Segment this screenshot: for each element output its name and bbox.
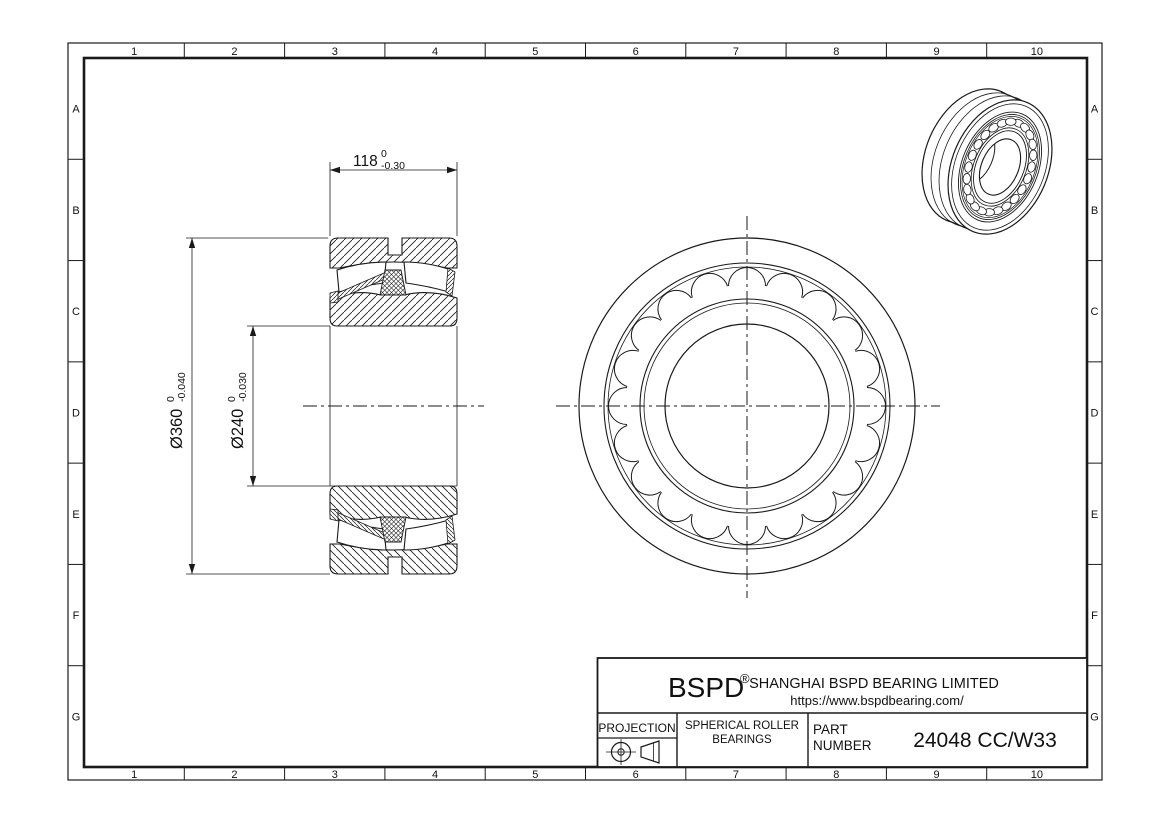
product-type-line2: BEARINGS bbox=[712, 734, 772, 746]
grid-column-label-top: 2 bbox=[231, 46, 237, 58]
grid-column-label-top: 7 bbox=[733, 46, 739, 58]
grid-row-label-left: A bbox=[72, 104, 80, 116]
grid-row-label-right: B bbox=[1091, 205, 1098, 217]
dim-width-tol-upper: 0 bbox=[381, 148, 387, 160]
grid-row-label-left: D bbox=[72, 408, 80, 420]
drawing-sheet: 1122334455667788991010AABBCCDDEEFFGG 118… bbox=[0, 0, 1169, 826]
roller-arc bbox=[855, 426, 879, 462]
grid-column-label-bottom: 4 bbox=[432, 769, 438, 781]
part-number-value: 24048 CC/W33 bbox=[913, 729, 1057, 752]
dim-od-nominal: Ø360 bbox=[168, 409, 186, 449]
roller-arc bbox=[767, 514, 803, 538]
grid-row-label-left: G bbox=[72, 711, 81, 723]
projection-label: PROJECTION bbox=[598, 721, 675, 735]
roller-arc bbox=[614, 426, 638, 462]
outer-ring-section bbox=[330, 238, 457, 268]
part-number-label-line2: NUMBER bbox=[813, 738, 872, 753]
grid-column-label-top: 8 bbox=[833, 46, 839, 58]
bearing-front-view bbox=[556, 216, 940, 598]
iso-roller bbox=[1005, 118, 1016, 125]
brand-logo: BSPD bbox=[668, 672, 744, 703]
guide-rib-section bbox=[380, 270, 406, 295]
grid-row-label-right: C bbox=[1091, 306, 1099, 318]
outer-ring-edge-circle bbox=[604, 263, 890, 549]
cage-wedge bbox=[446, 268, 455, 296]
grid-column-label-top: 3 bbox=[332, 46, 338, 58]
grid-column-label-bottom: 8 bbox=[833, 769, 839, 781]
grid-column-label-top: 10 bbox=[1031, 46, 1043, 58]
company-name: SHANGHAI BSPD BEARING LIMITED bbox=[749, 676, 999, 692]
roller-arc bbox=[855, 350, 879, 386]
grid-row-label-right: D bbox=[1091, 408, 1099, 420]
grid-row-label-right: E bbox=[1091, 509, 1098, 521]
grid-column-label-bottom: 6 bbox=[633, 769, 639, 781]
roller-arc bbox=[614, 350, 638, 386]
inner-ring-section bbox=[330, 293, 457, 326]
dim-bore-nominal: Ø240 bbox=[229, 409, 247, 449]
bearing-section-view bbox=[303, 238, 484, 574]
dim-width-tol-lower: -0.30 bbox=[381, 160, 405, 172]
grid-column-label-bottom: 3 bbox=[332, 769, 338, 781]
grid-row-label-left: E bbox=[72, 509, 79, 521]
grid-row-label-left: C bbox=[72, 306, 80, 318]
grid-row-label-left: F bbox=[73, 610, 80, 622]
grid-row-label-right: A bbox=[1091, 104, 1099, 116]
roller-arc bbox=[767, 273, 803, 297]
grid-column-label-bottom: 5 bbox=[532, 769, 538, 781]
iso-roller bbox=[963, 173, 971, 184]
grid-column-label-top: 4 bbox=[432, 46, 438, 58]
dim-od-tol-lower: -0.040 bbox=[176, 372, 188, 402]
title-block: BSPD ® SHANGHAI BSPD BEARING LIMITED htt… bbox=[598, 658, 1088, 767]
dim-width-nominal: 118 bbox=[353, 153, 378, 170]
website-url: https://www.bspdbearing.com/ bbox=[790, 693, 964, 708]
grid-column-label-top: 6 bbox=[633, 46, 639, 58]
grid-row-label-right: G bbox=[1090, 711, 1099, 723]
cage-rail bbox=[330, 291, 338, 303]
roller-arc bbox=[691, 514, 727, 538]
grid-column-label-top: 1 bbox=[131, 46, 137, 58]
grid-column-label-bottom: 10 bbox=[1031, 769, 1043, 781]
grid-row-label-left: B bbox=[72, 205, 79, 217]
roller-arc bbox=[691, 273, 727, 297]
iso-roller bbox=[1029, 150, 1037, 161]
grid-column-label-bottom: 2 bbox=[231, 769, 237, 781]
grid-column-label-bottom: 1 bbox=[131, 769, 137, 781]
grid-column-label-bottom: 7 bbox=[733, 769, 739, 781]
grid-column-label-top: 9 bbox=[933, 46, 939, 58]
part-number-label-line1: PART bbox=[813, 722, 848, 737]
dimension-width: 118 0 -0.30 bbox=[330, 148, 457, 236]
dim-bore-tol-lower: -0.030 bbox=[237, 372, 249, 402]
grid-column-label-bottom: 9 bbox=[933, 769, 939, 781]
bearing-isometric-view bbox=[902, 73, 1071, 250]
section-upper-half bbox=[330, 238, 457, 326]
grid-row-label-right: F bbox=[1091, 610, 1098, 622]
inner-ring-edge-circle bbox=[640, 299, 854, 513]
grid-column-label-top: 5 bbox=[532, 46, 538, 58]
product-type-line1: SPHERICAL ROLLER bbox=[685, 720, 799, 732]
